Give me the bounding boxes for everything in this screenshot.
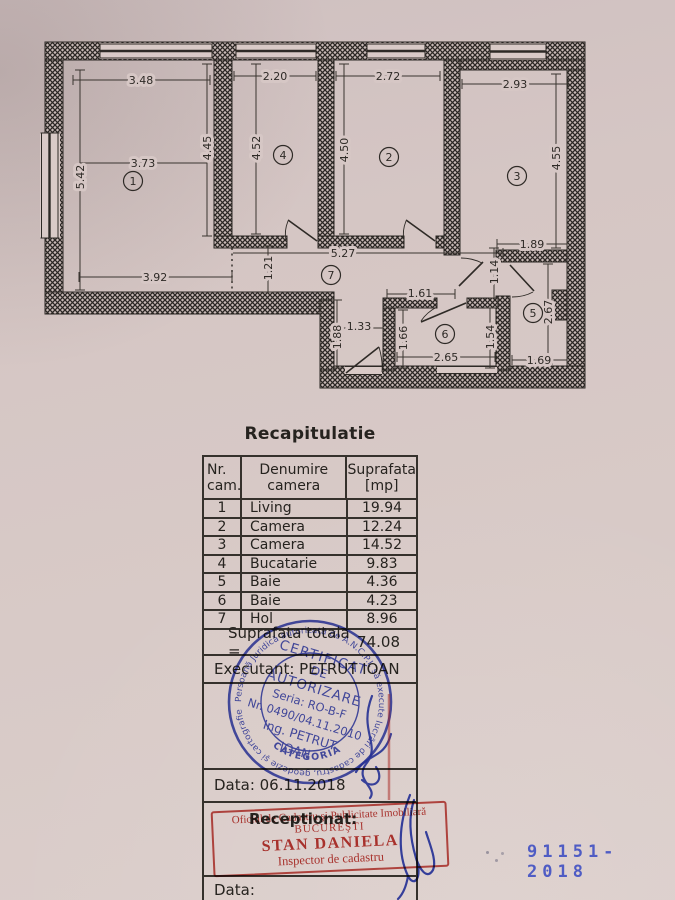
scan-specks: [486, 851, 489, 854]
stamp-signature-overlay: Persoană Juridică autorizată de A.N.C.P.…: [0, 0, 675, 900]
scanned-cadastral-document: 3.48 3.73 3.92 2.20 2.72 2.93 5.27 1.33 …: [0, 0, 675, 900]
blue-round-stamp: Persoană Juridică autorizată de A.N.C.P.…: [0, 0, 391, 783]
registry-number: 91151-2018: [527, 842, 675, 882]
signature-receptionat: [398, 795, 434, 899]
